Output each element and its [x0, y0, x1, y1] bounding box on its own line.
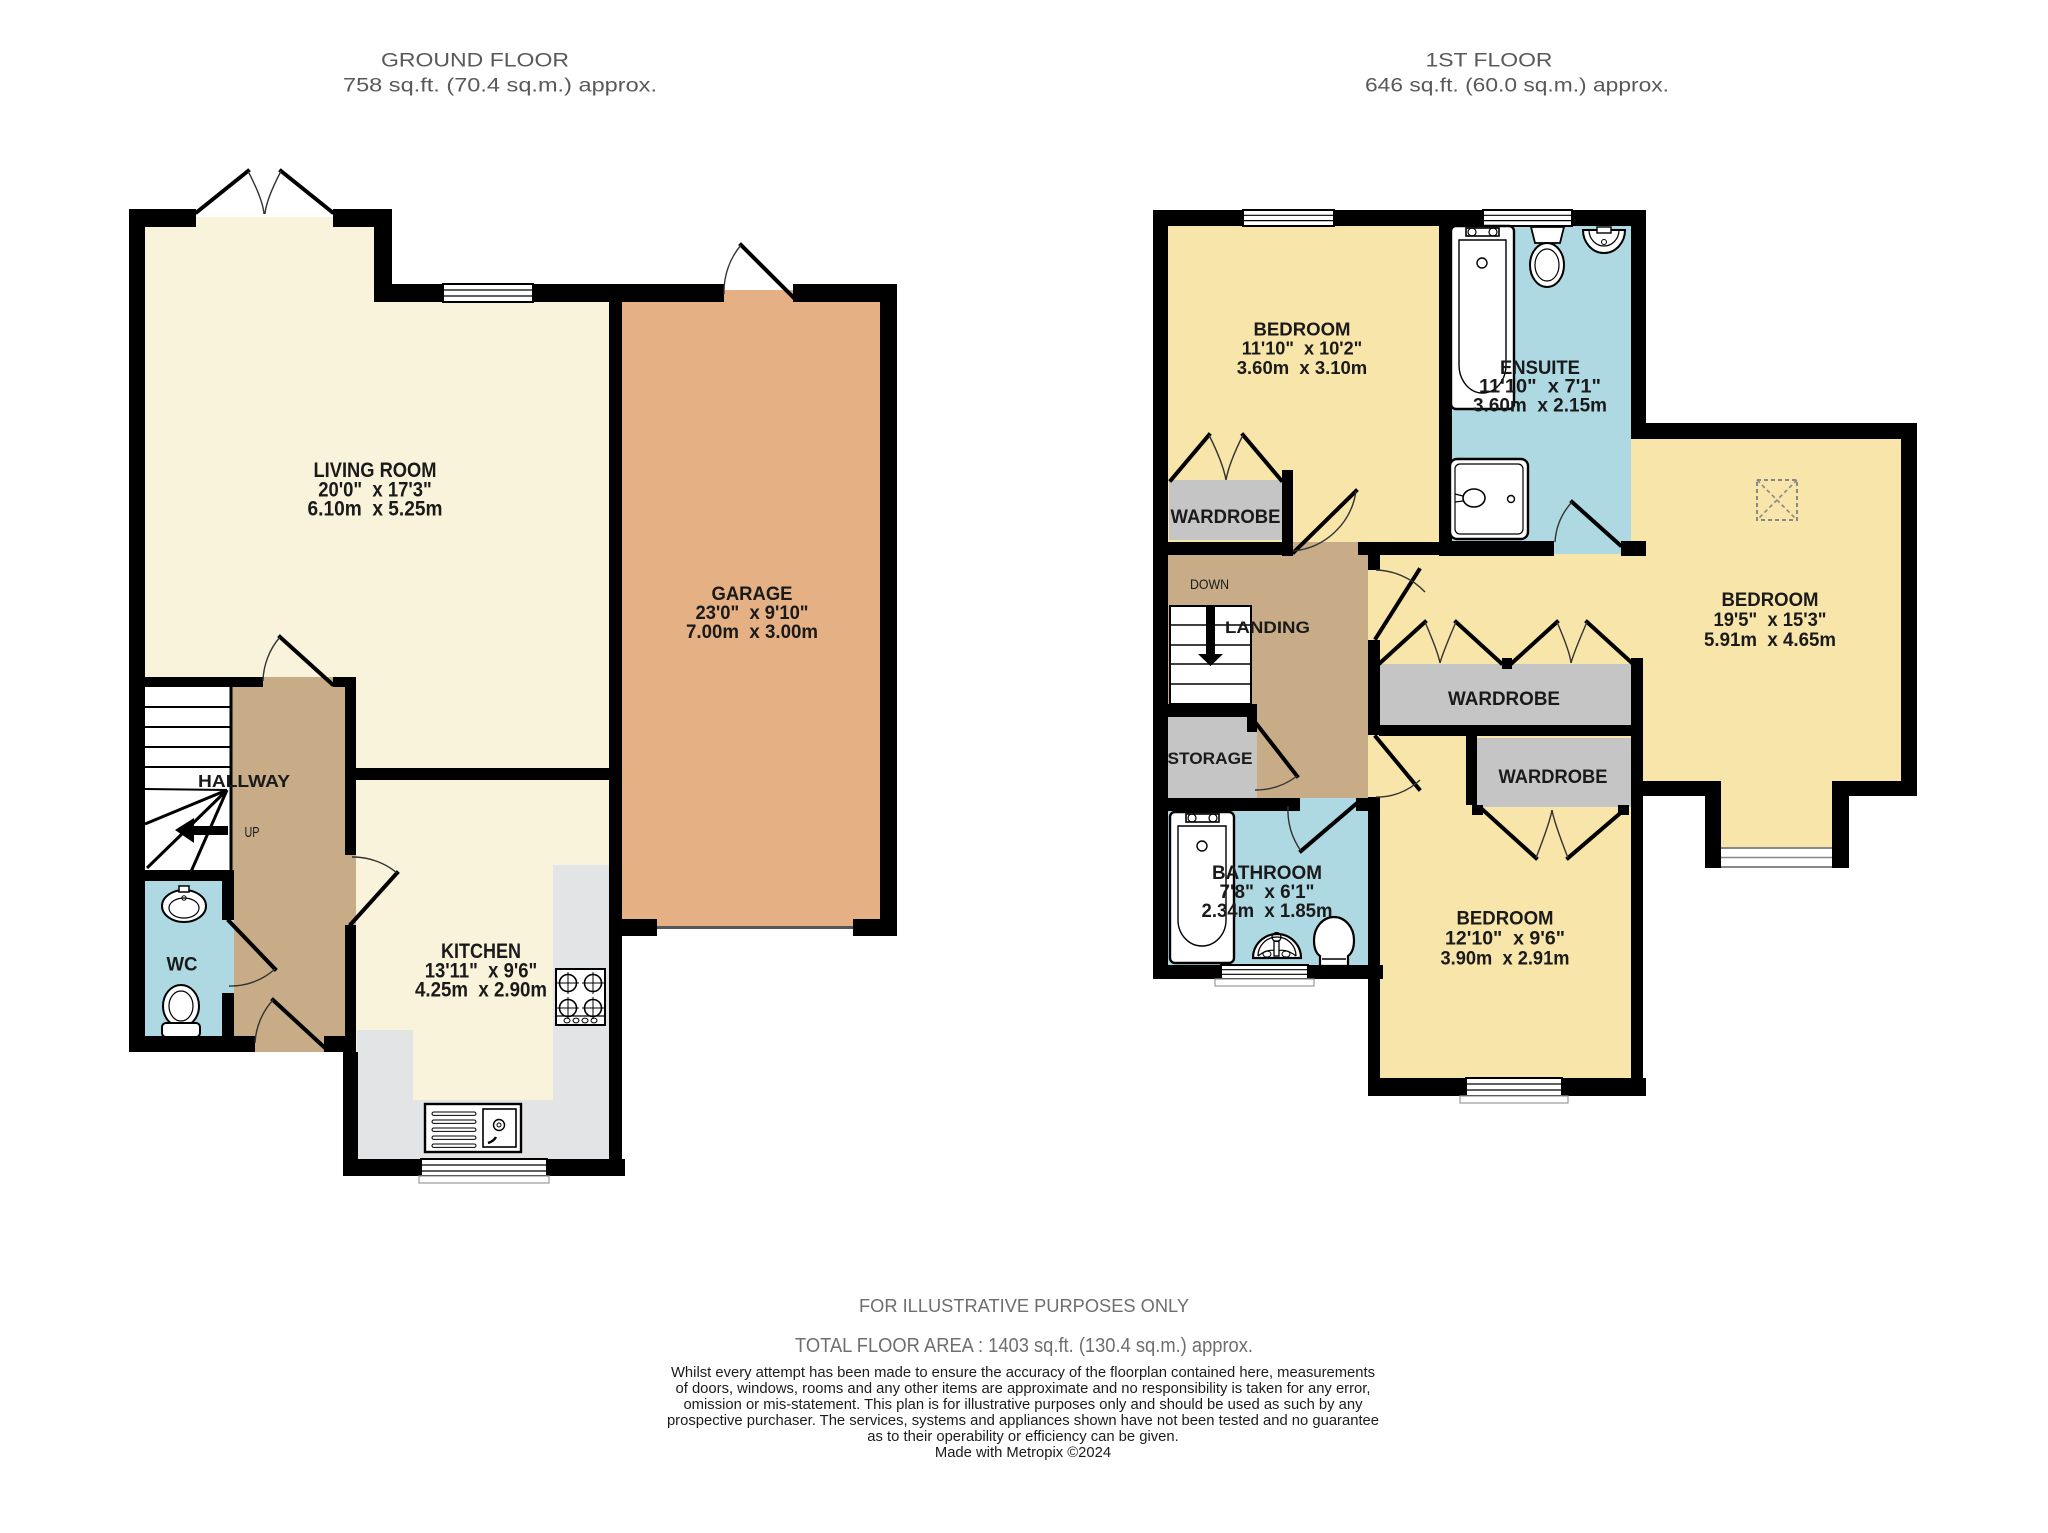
svg-text:DOWN: DOWN: [1190, 576, 1229, 592]
svg-text:2.34m x 1.85m: 2.34m x 1.85m: [1202, 901, 1333, 922]
svg-text:19'5" x 15'3": 19'5" x 15'3": [1714, 609, 1827, 631]
svg-text:GROUND FLOOR: GROUND FLOOR: [381, 50, 569, 72]
svg-text:1ST FLOOR: 1ST FLOOR: [1426, 50, 1553, 72]
svg-text:3.60m x 3.10m: 3.60m x 3.10m: [1237, 358, 1368, 378]
svg-text:4.25m x 2.90m: 4.25m x 2.90m: [415, 978, 547, 1002]
svg-text:3.60m x 2.15m: 3.60m x 2.15m: [1473, 394, 1607, 416]
svg-text:3.90m x 2.91m: 3.90m x 2.91m: [1441, 948, 1570, 970]
svg-text:WARDROBE: WARDROBE: [1448, 689, 1560, 710]
svg-text:12'10" x 9'6": 12'10" x 9'6": [1445, 928, 1565, 950]
svg-text:BEDROOM: BEDROOM: [1457, 908, 1554, 930]
svg-text:7.00m x 3.00m: 7.00m x 3.00m: [686, 621, 818, 643]
svg-text:7'8" x 6'1": 7'8" x 6'1": [1220, 882, 1315, 903]
svg-text:WARDROBE: WARDROBE: [1499, 767, 1608, 788]
svg-text:646 sq.ft. (60.0 sq.m.) approx: 646 sq.ft. (60.0 sq.m.) approx.: [1365, 75, 1669, 97]
svg-text:LANDING: LANDING: [1225, 619, 1310, 637]
svg-text:11'10" x 10'2": 11'10" x 10'2": [1242, 339, 1363, 359]
svg-text:758 sq.ft. (70.4 sq.m.) approx: 758 sq.ft. (70.4 sq.m.) approx.: [343, 75, 657, 97]
svg-text:STORAGE: STORAGE: [1168, 750, 1253, 768]
svg-text:FOR ILLUSTRATIVE PURPOSES ONLY: FOR ILLUSTRATIVE PURPOSES ONLY: [859, 1295, 1189, 1316]
svg-text:HALLWAY: HALLWAY: [198, 771, 290, 791]
svg-text:5.91m x 4.65m: 5.91m x 4.65m: [1704, 629, 1836, 651]
svg-text:TOTAL FLOOR AREA : 1403 sq.ft.: TOTAL FLOOR AREA : 1403 sq.ft. (130.4 sq…: [795, 1334, 1253, 1357]
svg-text:WC: WC: [167, 954, 198, 976]
svg-text:WARDROBE: WARDROBE: [1171, 507, 1281, 528]
svg-text:BATHROOM: BATHROOM: [1212, 863, 1322, 884]
svg-text:BEDROOM: BEDROOM: [1722, 589, 1819, 611]
svg-text:BEDROOM: BEDROOM: [1254, 320, 1351, 340]
svg-text:UP: UP: [245, 825, 260, 841]
svg-text:6.10m x 5.25m: 6.10m x 5.25m: [308, 498, 443, 521]
